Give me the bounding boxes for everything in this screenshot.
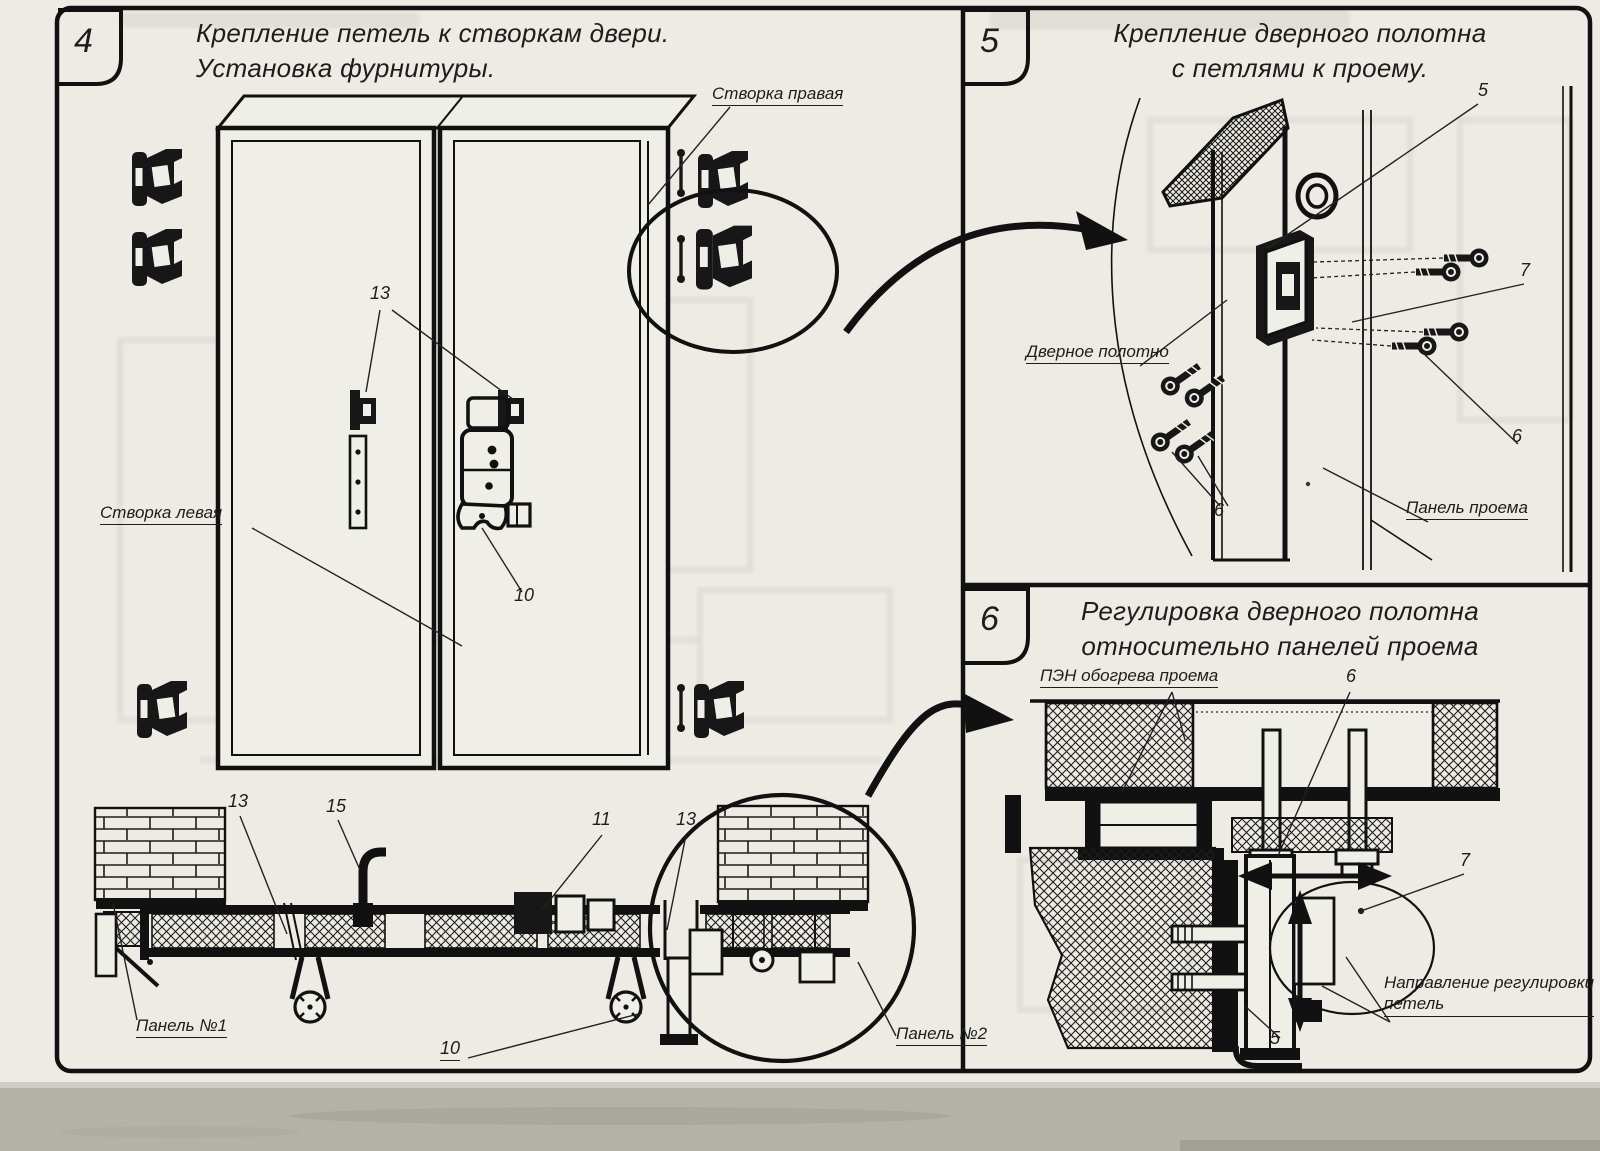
callout-left-leaf: Створка левая: [100, 503, 222, 525]
scan-edge-artifacts: [0, 1082, 1600, 1151]
technical-drawing-canvas: [0, 0, 1600, 1151]
screw-pin-icon: [677, 684, 685, 732]
hinge-icon: [132, 229, 182, 286]
panel4-title-line2: Установка фурнитуры.: [196, 51, 669, 86]
panel6-title-line1: Регулировка дверного полотна: [1040, 594, 1520, 629]
callout-7-screw: 7: [1520, 260, 1530, 281]
callout-5-hinge: 5: [1478, 80, 1488, 101]
panel5-title-line2: с петлями к проему.: [1080, 51, 1520, 86]
adjustment-direction-line1: Направление регулировки: [1384, 972, 1594, 993]
screw-pin-icon: [677, 149, 685, 197]
callout-panel-no2: Панель №2: [896, 1024, 987, 1046]
caster-wheel-icon: [608, 957, 644, 1022]
callout-15-handle: 15: [326, 796, 346, 817]
hinge-icon: [698, 151, 748, 208]
callout-panel-no1: Панель №1: [136, 1016, 227, 1038]
callout-13-section-right: 13: [676, 809, 696, 830]
callout-13-section-left: 13: [228, 791, 248, 812]
callout-11-lock: 11: [592, 809, 611, 830]
panel5-title-line1: Крепление дверного полотна: [1080, 16, 1520, 51]
panel4-doors-view: [132, 96, 837, 768]
callout-right-leaf: Створка правая: [712, 84, 843, 106]
hinge-icon: [137, 681, 187, 738]
callout-10-section: 10: [440, 1038, 460, 1061]
callout-opening-panel: Панель проема: [1406, 498, 1528, 520]
panel6-title-line2: относительно панелей проема: [1040, 629, 1520, 664]
hinge-icon: [696, 226, 752, 290]
panel5-number: 5: [980, 22, 999, 61]
panel6-title: Регулировка дверного полотна относительн…: [1040, 594, 1520, 664]
hinge-icon: [694, 681, 744, 738]
hinge-icon: [132, 149, 182, 206]
scanned-assembly-drawing: 4 Крепление петель к створкам двери. Уст…: [0, 0, 1600, 1151]
callout-adjustment-direction: Направление регулировки петель: [1384, 972, 1594, 1017]
panel6-number: 6: [980, 600, 999, 639]
adjustment-direction-line2: петель: [1384, 993, 1594, 1014]
callout-10-latch: 10: [514, 585, 534, 606]
callout-6-screw-left: 6: [1214, 500, 1224, 521]
screw-icon: [1392, 337, 1437, 356]
caster-wheel-icon: [292, 957, 328, 1022]
panel4-number: 4: [74, 22, 93, 61]
callout-pen-heater: ПЭН обогрева проема: [1040, 666, 1218, 688]
callout-7-profile: 7: [1460, 850, 1470, 871]
panel4-title: Крепление петель к створкам двери. Устан…: [196, 16, 669, 86]
callout-5-bottom: 5: [1270, 1028, 1280, 1049]
screw-pin-icon: [677, 235, 685, 283]
callout-13-hinges: 13: [370, 283, 390, 304]
panel4-title-line1: Крепление петель к створкам двери.: [196, 16, 669, 51]
callout-6-bolt: 6: [1346, 666, 1356, 687]
callout-door-leaf: Дверное полотно: [1026, 342, 1169, 364]
callout-6-screw-right: 6: [1512, 426, 1522, 447]
screw-icon: [1416, 263, 1461, 282]
panel5-title: Крепление дверного полотна с петлями к п…: [1080, 16, 1520, 86]
